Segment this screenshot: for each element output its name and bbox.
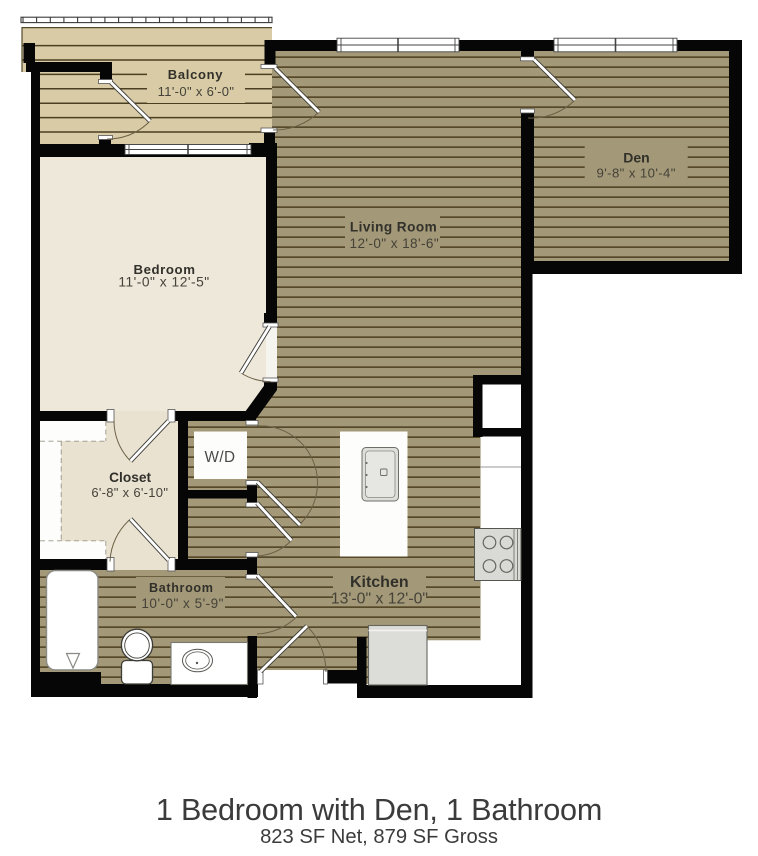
svg-text:W/D: W/D [205, 449, 236, 466]
svg-text:11'-0" x 12'-5": 11'-0" x 12'-5" [118, 274, 209, 289]
svg-text:Living Room: Living Room [350, 219, 437, 234]
svg-text:6'-8" x 6'-10": 6'-8" x 6'-10" [91, 485, 168, 500]
svg-text:Kitchen: Kitchen [350, 574, 409, 591]
svg-text:9'-8" x 10'-4": 9'-8" x 10'-4" [597, 165, 676, 180]
svg-text:823 SF Net, 879 SF Gross: 823 SF Net, 879 SF Gross [260, 826, 498, 848]
svg-text:Closet: Closet [109, 470, 151, 485]
svg-text:12'-0" x 18'-6": 12'-0" x 18'-6" [349, 236, 439, 251]
svg-text:13'-0" x 12'-0": 13'-0" x 12'-0" [331, 591, 428, 608]
svg-text:Balcony: Balcony [168, 67, 224, 82]
svg-text:10'-0" x 5'-9": 10'-0" x 5'-9" [141, 596, 224, 611]
svg-text:Bathroom: Bathroom [149, 581, 214, 595]
svg-text:1 Bedroom with Den, 1 Bathroom: 1 Bedroom with Den, 1 Bathroom [156, 793, 602, 827]
svg-text:Den: Den [623, 149, 649, 165]
svg-text:11'-0" x 6'-0": 11'-0" x 6'-0" [158, 84, 235, 99]
